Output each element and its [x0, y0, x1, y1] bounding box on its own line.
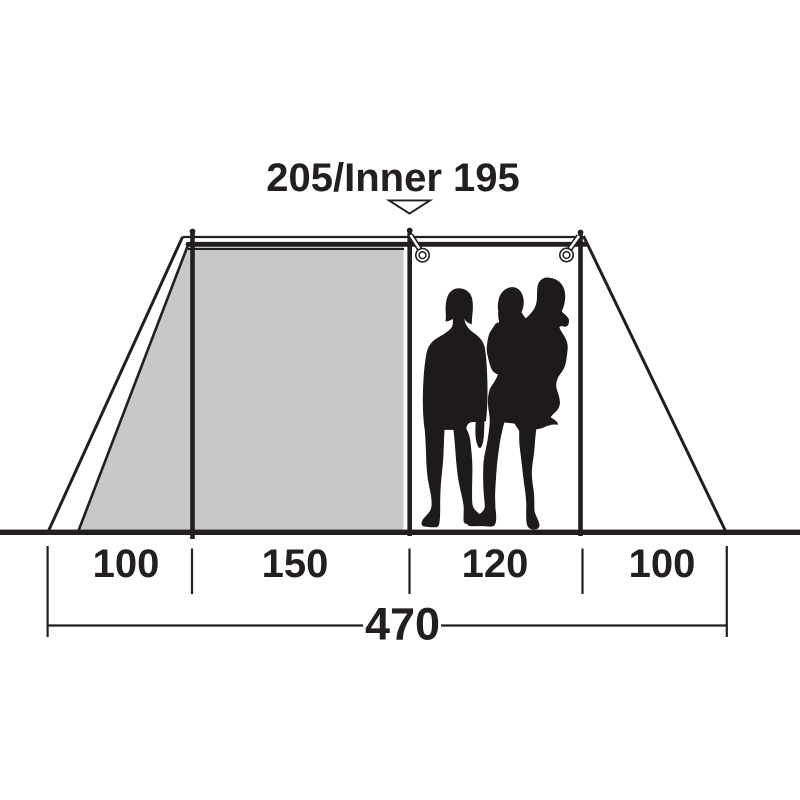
svg-text:205/Inner 195: 205/Inner 195	[266, 156, 520, 200]
svg-text:100: 100	[629, 542, 696, 586]
svg-text:470: 470	[365, 599, 440, 650]
svg-text:150: 150	[262, 542, 329, 586]
svg-text:100: 100	[93, 542, 160, 586]
svg-text:120: 120	[462, 542, 529, 586]
